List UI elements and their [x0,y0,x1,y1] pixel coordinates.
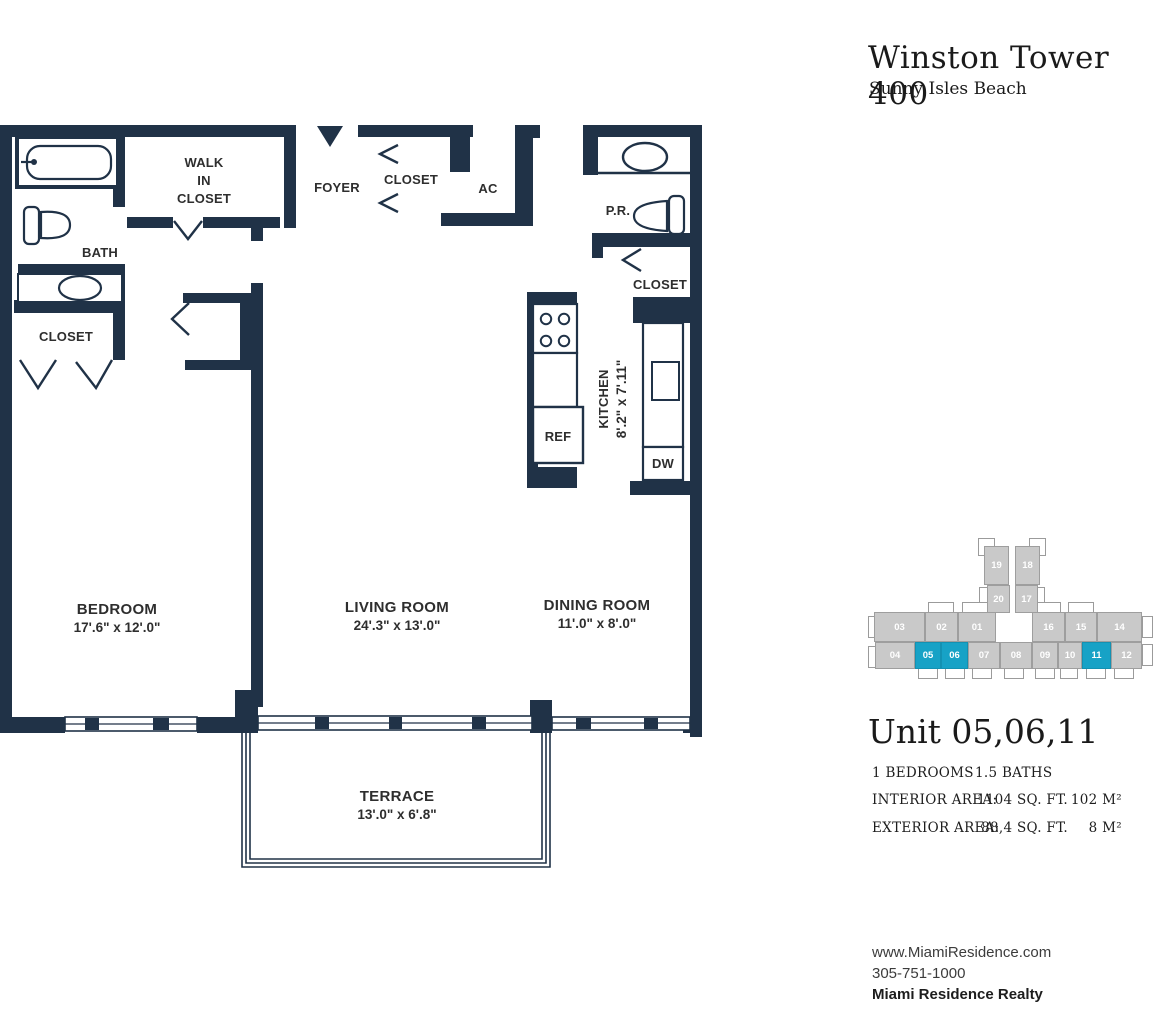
keyplan-unit-06: 06 [941,642,968,669]
walkin-label-3: CLOSET [177,191,231,206]
dining-dims: 11'.0" x 8'.0" [558,616,637,631]
keyplan-unit-15: 15 [1065,612,1097,642]
keyplan-unit-16: 16 [1032,612,1065,642]
keyplan-unit-14: 14 [1097,612,1142,642]
walkin-label-1: WALK [184,155,223,170]
kitchen-counter [533,353,577,407]
footer: www.MiamiResidence.com 305-751-1000 Miam… [872,942,1051,1005]
kitchen-dims: 8'.2" x 7'.11" [614,360,629,439]
bathtub [27,146,111,179]
ref-label: REF [545,429,572,444]
bath-label: BATH [82,245,118,260]
keyplan-unit-20: 20 [987,585,1010,613]
exterior-m2: 8 M² [1066,820,1122,836]
bath-closet-label: CLOSET [39,329,93,344]
toilet-tank [24,207,39,244]
keyplan-unit-01: 01 [958,612,996,642]
bedroom-dims: 17'.6" x 12'.0" [74,620,161,635]
keyplan-unit-18: 18 [1015,546,1040,585]
keyplan-unit-07: 07 [968,642,1000,669]
floorplan: WALK IN CLOSET FOYER CLOSET AC BATH CLOS… [0,0,710,880]
ac-label: AC [478,181,498,196]
foyer-closet-door-icon [380,145,398,163]
keyplan-balcony-outline [1142,644,1153,666]
footer-phone: 305-751-1000 [872,963,1051,984]
keyplan-unit-03: 03 [874,612,925,642]
keyplan-unit-02: 02 [925,612,958,642]
footer-website: www.MiamiResidence.com [872,942,1051,963]
walkin-door-icon [174,221,202,239]
pr-sink-icon [623,143,667,171]
kitchen-sink [652,362,679,400]
living-dims: 24'.3" x 13'.0" [354,618,441,633]
terrace-label: TERRACE [360,788,435,805]
bedroom-door-icon [172,303,189,335]
bedrooms-value: 1 BEDROOMS [872,765,974,781]
pr-toilet-tank [669,196,684,234]
baths-value: 1.5 BATHS [975,765,1052,781]
exterior-sqft: 88,4 SQ. FT. [955,820,1068,836]
building-location: Sunny Isles Beach [869,79,1027,99]
dw-label: DW [652,456,675,471]
keyplan-unit-10: 10 [1058,642,1082,669]
stove [533,304,577,353]
keyplan-unit-12: 12 [1111,642,1142,669]
interior-sqft: 1104 SQ. FT. [955,792,1068,808]
keyplan-unit-05: 05 [915,642,941,669]
building-title: Winston Tower 400 [868,40,1155,112]
pr-closet-label: CLOSET [633,277,687,292]
living-label: LIVING ROOM [345,599,449,616]
windows [65,716,690,731]
foyer-closet-label: CLOSET [384,172,438,187]
footer-company: Miami Residence Realty [872,984,1051,1005]
keyplan-unit-09: 09 [1032,642,1058,669]
walls [0,125,702,737]
unit-title: Unit 05,06,11 [868,712,1098,751]
dining-label: DINING ROOM [544,597,651,614]
foyer-label: FOYER [314,180,360,195]
kitchen-label: KITCHEN [596,369,611,428]
bath-closet-door2-icon [76,360,112,388]
toilet-bowl [41,212,70,238]
foyer-closet-door2-icon [380,194,398,212]
keyplan-unit-08: 08 [1000,642,1032,669]
keyplan-balcony-outline [1142,616,1153,638]
bath-closet-door-icon [20,360,56,388]
pr-closet-door-icon [623,249,641,271]
pr-toilet-bowl [634,201,667,231]
terrace-dims: 13'.0" x 6'.8" [357,807,436,822]
sink-icon [59,276,101,300]
pr-label: P.R. [606,203,630,218]
keyplan-unit-17: 17 [1015,585,1038,613]
keyplan-unit-19: 19 [984,546,1009,585]
interior-m2: 102 M² [1066,792,1122,808]
bedroom-label: BEDROOM [77,601,157,618]
walkin-label-2: IN [197,173,210,188]
keyplan-unit-04: 04 [875,642,915,669]
keyplan: 19182017030201161514040506070809101112 [868,538,1155,686]
keyplan-unit-11: 11 [1082,642,1111,669]
page: WALK IN CLOSET FOYER CLOSET AC BATH CLOS… [0,0,1155,1020]
